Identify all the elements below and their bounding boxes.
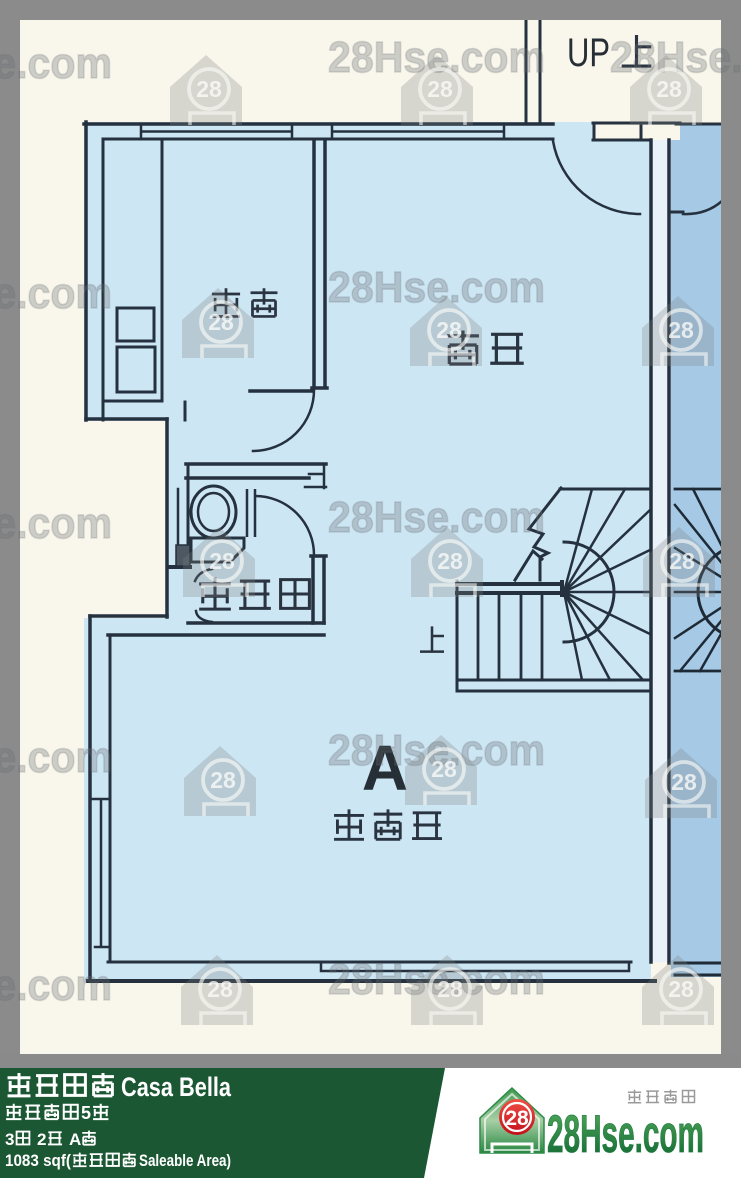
svg-text:1083 sqf(: 1083 sqf( bbox=[5, 1152, 71, 1170]
svg-text:2: 2 bbox=[37, 1130, 46, 1149]
svg-text:3: 3 bbox=[5, 1130, 14, 1149]
svg-text:Saleable Area): Saleable Area) bbox=[139, 1152, 231, 1170]
svg-text:5: 5 bbox=[81, 1103, 91, 1123]
svg-text:28: 28 bbox=[505, 1107, 529, 1130]
svg-text:A: A bbox=[69, 1130, 81, 1149]
svg-text:Casa Bella: Casa Bella bbox=[121, 1072, 232, 1102]
svg-text:28Hse.com: 28Hse.com bbox=[547, 1105, 704, 1164]
svg-text:28Hse.com: 28Hse.com bbox=[328, 493, 545, 542]
svg-text:28Hse.com: 28Hse.com bbox=[0, 269, 112, 318]
svg-text:28Hse.com: 28Hse.com bbox=[0, 961, 112, 1010]
svg-text:28Hse.com: 28Hse.com bbox=[0, 39, 112, 88]
svg-text:UP: UP bbox=[567, 31, 610, 75]
svg-text:28Hse.com: 28Hse.com bbox=[0, 499, 112, 548]
svg-text:28Hse.com: 28Hse.com bbox=[0, 733, 112, 782]
